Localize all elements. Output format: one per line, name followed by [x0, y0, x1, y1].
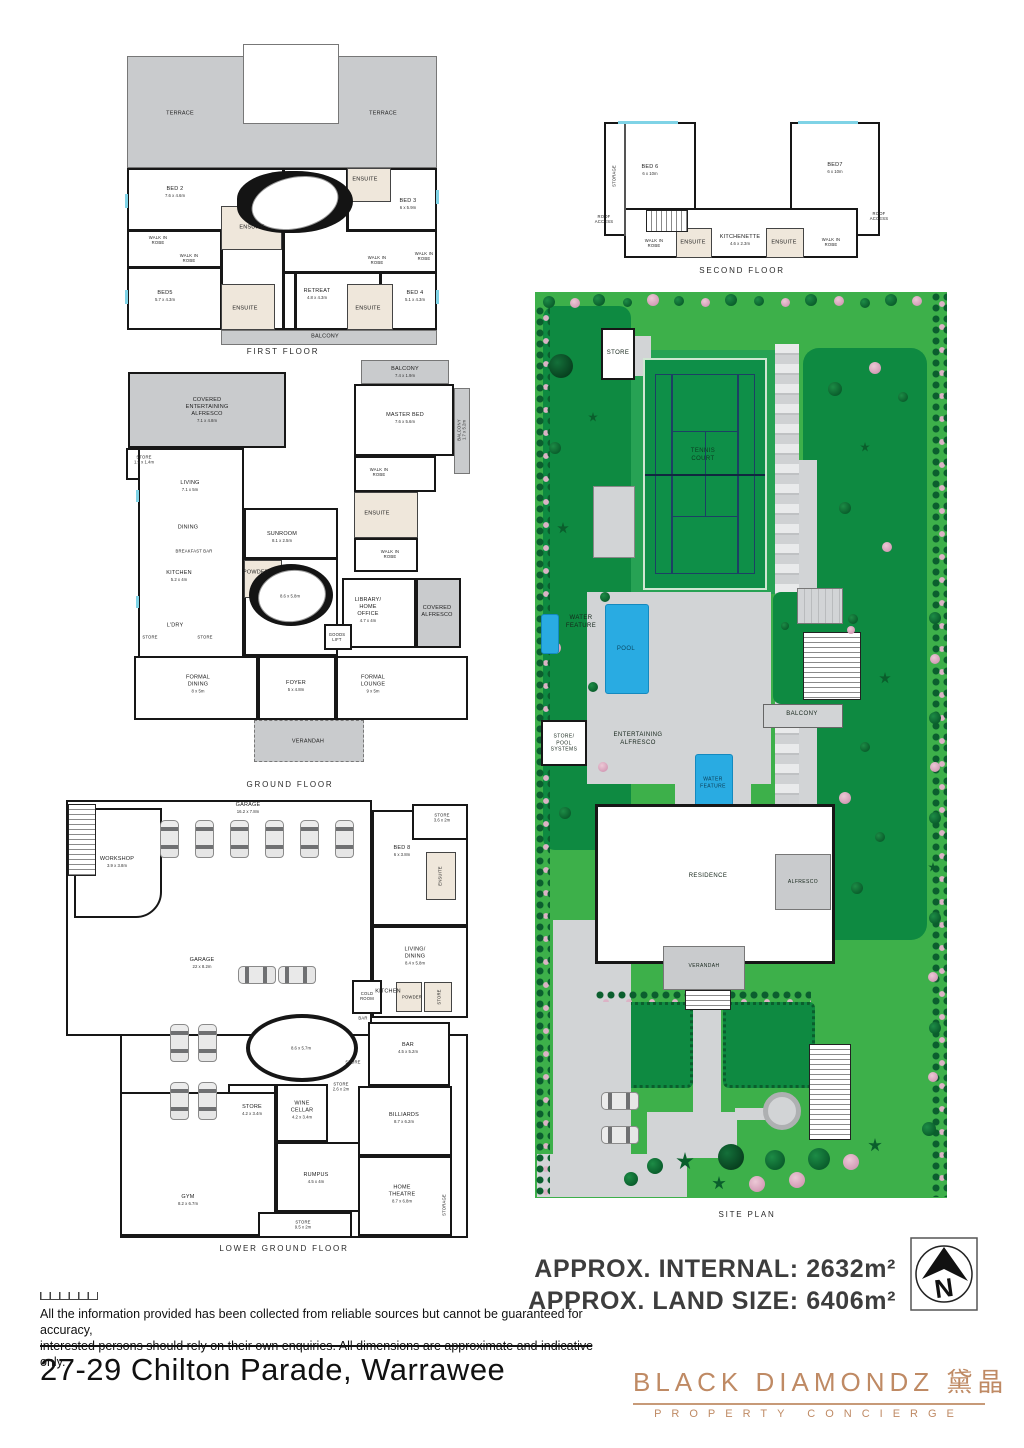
garden-steps — [685, 990, 731, 1010]
window — [125, 290, 128, 304]
room-label: TERRACE — [369, 111, 397, 118]
room-label: 8.6 x 5.7m — [291, 1045, 311, 1050]
agency-tagline: PROPERTY CONCIERGE — [633, 1408, 985, 1420]
room-name: MASTER BED — [386, 412, 424, 418]
first-floor-plan: TERRACE TERRACE BED 27.6 x 4.6m ENSUITE … — [125, 44, 440, 360]
room-label: GOODS LIFT — [326, 632, 348, 643]
car-icon — [238, 966, 276, 984]
room-label: TERRACE — [166, 111, 194, 118]
flowering-shrub-icon — [928, 972, 938, 982]
room-name: BALCONY — [457, 419, 462, 440]
room-name: COVERED ALFRESCO — [421, 605, 452, 618]
room-dims: 8.7 x 6.8m — [385, 1198, 419, 1203]
room-dims: 4.6 x 2.3m — [720, 241, 760, 246]
room-label: STORAGE — [441, 1194, 446, 1216]
room-dims: 7.1 x 5m — [180, 487, 199, 492]
tree-icon — [922, 1122, 936, 1136]
room-dims: 2.6 x 2m — [333, 1087, 349, 1092]
tree-icon — [549, 354, 573, 378]
site-label-text: ALFRESCO — [788, 879, 818, 885]
room-label: ENSUITE — [355, 306, 380, 313]
room-name: BALCONY — [311, 334, 339, 340]
car-icon — [195, 820, 214, 858]
room-label: STORE — [142, 634, 157, 639]
tree-icon — [929, 812, 941, 824]
agency-logo: BLACK DIAMONDZ 黛晶 PROPERTY CONCIERGE — [633, 1362, 985, 1420]
room-dims: 4.7 x 4m — [351, 618, 385, 623]
room-name: VERANDAH — [292, 739, 324, 745]
room-label: LIVING/ DINING8.4 x 5.8m — [397, 946, 433, 965]
room-name: STORE — [136, 455, 151, 460]
room-dims: 7.6 x 5.6m — [386, 419, 424, 424]
room-dims: 16.2 x 7.8m — [236, 809, 261, 814]
hedge-border — [931, 292, 947, 1197]
room-label: STORE1.9 x 1.4m — [134, 455, 154, 466]
room-name: KITCHEN — [166, 570, 192, 576]
car-icon — [278, 966, 316, 984]
room-label: RETREAT4.8 x 4.3m — [304, 288, 331, 300]
compass-north-label: N — [932, 1272, 955, 1304]
tree-icon — [623, 298, 632, 307]
room-name: STORE — [295, 1220, 310, 1225]
room-dims: 3.6 x 2m — [434, 818, 450, 823]
room-name: STORE — [345, 1059, 360, 1064]
room-name: BAR — [358, 1015, 367, 1020]
divider-line — [40, 1345, 592, 1347]
tree-icon — [848, 614, 858, 624]
room-name: BED7 — [827, 162, 842, 168]
room-name: ENSUITE — [352, 177, 377, 183]
driveway-entry — [537, 1154, 687, 1197]
compass-icon: N — [910, 1237, 978, 1316]
room-name: L'DRY — [167, 623, 184, 629]
room-label: WALK IN ROBE — [412, 251, 436, 262]
wall — [624, 122, 626, 236]
room-label: STORE4.2 x 3.4m — [242, 1104, 262, 1116]
room-name: ENSUITE — [232, 306, 257, 312]
flowering-shrub-icon — [928, 1072, 938, 1082]
room-label: RUMPUS4.5 x 4m — [303, 1172, 328, 1184]
room-name: GARAGE — [190, 957, 215, 963]
room-label: LIVING7.1 x 5m — [180, 480, 199, 492]
room-name: WORKSHOP — [100, 856, 134, 862]
terrace-notch — [243, 44, 339, 124]
room-label: GARAGE22 x 8.2m — [190, 957, 215, 969]
room-name: TERRACE — [166, 111, 194, 117]
room-dims: 1.9 x 1.4m — [134, 460, 154, 465]
room-dims: 3.9 x 3.8m — [100, 863, 134, 868]
room-label: BREAKFAST BAR — [176, 548, 213, 553]
flowering-shrub-icon — [781, 298, 790, 307]
room-name: STORE — [197, 634, 212, 639]
room-label: BALCONY — [311, 334, 339, 341]
site-label: POOL — [617, 646, 635, 654]
staircase — [68, 804, 96, 876]
room-dims: 5.2 x 4m — [166, 577, 192, 582]
room-dims: 5.1 x 4.3m — [405, 297, 425, 302]
wall — [282, 271, 437, 274]
window — [125, 194, 128, 208]
room-label: HOME THEATRE8.7 x 6.8m — [385, 1184, 419, 1203]
room-name: COLD ROOM — [360, 991, 374, 1001]
room-name: BAR — [402, 1042, 414, 1048]
car-icon — [230, 820, 249, 858]
room-dims: 8.6 x 5.8m — [280, 593, 300, 598]
tree-icon — [588, 682, 598, 692]
room-label: FOYER5 x 4.8m — [286, 680, 306, 692]
room-dims: 8 x 5m — [181, 688, 215, 693]
flowering-shrub-icon — [843, 1154, 859, 1170]
car-icon — [601, 1092, 639, 1110]
room-name: BALCONY — [391, 366, 419, 372]
tree-icon — [674, 296, 684, 306]
floor-title: FIRST FLOOR — [247, 347, 320, 356]
room-name: STORAGE — [611, 165, 616, 187]
room-name: SUNROOM — [267, 531, 297, 537]
water-feature — [541, 614, 559, 654]
car-icon — [198, 1082, 217, 1120]
site-label-text: POOL — [617, 646, 635, 652]
room-name: LIVING/ DINING — [405, 946, 426, 959]
tree-icon — [808, 1148, 830, 1170]
room-name: BED5 — [157, 290, 172, 296]
site-label: TENNIS COURT — [683, 448, 723, 464]
flowering-shrub-icon — [930, 654, 940, 664]
site-plan: STORE TENNIS COURT WATER FEATURE POOL ST… — [535, 292, 947, 1226]
room-name: GOODS LIFT — [329, 632, 346, 642]
room-dims: 4.2 x 3.4m — [242, 1111, 262, 1116]
room-label: GARAGE16.2 x 7.8m — [236, 802, 261, 814]
window — [436, 190, 439, 204]
room-dims: 6 x 3.8m — [394, 852, 411, 857]
room-label: L'DRY — [167, 623, 184, 630]
tree-icon — [839, 502, 851, 514]
site-label: STORE — [607, 350, 630, 358]
car-icon — [300, 820, 319, 858]
ground-floor-plan: COVERED ENTERTAINING ALFRESCO7.1 x 4.8m … — [106, 360, 474, 796]
approx-internal: APPROX. INTERNAL: 2632m² — [528, 1253, 896, 1285]
room-label: ENSUITE — [680, 240, 705, 247]
site-label-text: WATER FEATURE — [566, 615, 596, 629]
floor-title: GROUND FLOOR — [247, 780, 334, 789]
window — [618, 121, 678, 124]
parterre-bed — [723, 1002, 815, 1088]
room-dims: 9 x 5m — [355, 688, 391, 693]
room-dims: 6 x 5.9m — [400, 205, 417, 210]
window — [436, 290, 439, 304]
room-name: WALK IN ROBE — [370, 467, 388, 477]
room-dims: 7.1 x 4.8m — [179, 418, 235, 423]
room-label: 8.6 x 5.8m — [280, 593, 300, 598]
site-label-text: BALCONY — [786, 711, 817, 717]
room-label: WALK IN ROBE — [377, 549, 403, 560]
pergola — [797, 588, 843, 624]
tree-icon — [765, 1150, 785, 1170]
flowering-shrub-icon — [701, 298, 710, 307]
site-label: RESIDENCE — [689, 873, 728, 881]
tree-icon — [593, 294, 605, 306]
site-label: BALCONY — [786, 711, 817, 719]
floor-title: SECOND FLOOR — [699, 266, 785, 275]
car-icon — [160, 820, 179, 858]
room-name: ENSUITE — [437, 866, 442, 886]
tree-icon — [543, 296, 555, 308]
flowering-shrub-icon — [570, 298, 580, 308]
room-label: WALK IN ROBE — [365, 255, 389, 266]
tree-icon — [929, 612, 941, 624]
room-dims: 6 x 10m — [827, 169, 842, 174]
room-name: WALK IN ROBE — [415, 251, 433, 261]
room-label: ENSUITE — [232, 306, 257, 313]
room-name: BED 2 — [167, 186, 184, 192]
tree-icon — [559, 807, 571, 819]
room-dims: 4.8 x 4.3m — [304, 295, 331, 300]
room-name: STORE — [436, 989, 441, 1004]
ensuite-area — [347, 168, 391, 202]
room-label: FORMAL LOUNGE9 x 5m — [355, 674, 391, 693]
room-name: BED 4 — [407, 290, 424, 296]
room-dims: 4.2 x 3.4m — [287, 1114, 317, 1119]
room-dims: 1.7 x 5.2m — [462, 419, 467, 440]
room-label: BED 27.6 x 4.6m — [165, 186, 185, 198]
room-name: BED 6 — [642, 164, 659, 170]
wall — [294, 271, 297, 330]
flowering-shrub-icon — [912, 296, 922, 306]
room-label: BED55.7 x 4.3m — [155, 290, 175, 302]
room-label: WINE CELLAR4.2 x 3.4m — [287, 1100, 317, 1119]
room-name: STORE — [333, 1082, 348, 1087]
room-name: ENSUITE — [364, 511, 389, 517]
room-name: HOME THEATRE — [389, 1184, 416, 1197]
room-name: ENSUITE — [239, 225, 264, 231]
room-dims: 7.6 x 4.6m — [165, 193, 185, 198]
room-name: BREAKFAST BAR — [176, 548, 213, 553]
tree-icon — [600, 592, 610, 602]
room-label: COLD ROOM — [357, 991, 377, 1002]
site-label-text: STORE — [607, 350, 630, 356]
tree-icon — [754, 296, 764, 306]
room-label: WALK IN ROBE — [177, 253, 201, 264]
lower-ground-floor-plan: WORKSHOP3.9 x 3.8m GARAGE16.2 x 7.8m GAR… — [60, 796, 472, 1258]
tree-icon — [860, 298, 870, 308]
site-label: WATER FEATURE — [698, 777, 728, 790]
garden-structure — [593, 486, 635, 558]
room-name: STORE — [242, 1104, 262, 1110]
grand-stairs — [809, 1044, 851, 1140]
room-name: LIBRARY/ HOME OFFICE — [355, 597, 382, 617]
logo-rule — [633, 1403, 985, 1405]
room-label: MASTER BED7.6 x 5.6m — [386, 412, 424, 424]
room-label: WALK IN ROBE — [366, 467, 392, 478]
car-icon — [265, 820, 284, 858]
room-label: STORE2.6 x 2m — [333, 1082, 349, 1093]
room-dims: 8.7 x 6.2m — [389, 1119, 419, 1124]
tree-icon — [851, 882, 863, 894]
floorplan-page: TERRACE TERRACE BED 27.6 x 4.6m ENSUITE … — [0, 0, 1024, 1448]
room-name: WALK IN ROBE — [645, 238, 663, 248]
room-name: RETREAT — [304, 288, 331, 294]
room-label: KITCHEN — [375, 989, 401, 996]
site-label-text: STORE/ POOL SYSTEMS — [551, 733, 578, 752]
room-label: DINING — [178, 525, 198, 532]
room-label: ROOF ACCESS — [869, 211, 889, 222]
room-label: BED 45.1 x 4.3m — [405, 290, 425, 302]
room-name: FORMAL LOUNGE — [361, 674, 385, 687]
tree-icon — [885, 294, 897, 306]
property-address: 27-29 Chilton Parade, Warrawee — [40, 1352, 505, 1388]
flowering-shrub-icon — [647, 294, 659, 306]
site-plan-title: SITE PLAN — [718, 1210, 775, 1219]
room-label: STORE — [345, 1059, 360, 1064]
site-label: ENTERTAINING ALFRESCO — [608, 732, 668, 748]
room-dims: 9.5 x 2m — [295, 1225, 311, 1230]
room-name: BILLIARDS — [389, 1112, 419, 1118]
tree-icon — [725, 294, 737, 306]
site-label: VERANDAH — [689, 963, 720, 970]
flowering-shrub-icon — [839, 792, 851, 804]
site-label-text: WATER FEATURE — [700, 777, 726, 790]
car-icon — [335, 820, 354, 858]
room-dims: 7.4 x 1.9m — [391, 373, 419, 378]
site-label-text: RESIDENCE — [689, 873, 728, 879]
room-label: BALCONY1.7 x 5.2m — [457, 419, 468, 440]
room-name: WINE CELLAR — [291, 1100, 314, 1113]
floor-title: LOWER GROUND FLOOR — [219, 1244, 348, 1253]
window — [798, 121, 858, 124]
tree-icon — [929, 1022, 941, 1034]
room-name: POWDER — [243, 570, 269, 576]
tennis-court — [643, 358, 767, 590]
tree-icon — [805, 294, 817, 306]
room-label: COVERED ALFRESCO — [421, 605, 453, 619]
room-name: DINING — [178, 525, 198, 531]
room-label: ROOF ACCESS — [594, 214, 614, 225]
room-name: WALK IN ROBE — [381, 549, 399, 559]
room-label: GYM8.2 x 6.7m — [178, 1194, 198, 1206]
room-label: STORE — [197, 634, 212, 639]
car-icon — [170, 1082, 189, 1120]
room-name: FOYER — [286, 680, 306, 686]
flowering-shrub-icon — [598, 762, 608, 772]
room-name: KITCHENETTE — [720, 234, 760, 240]
room-dims: 8.1 x 2.5m — [267, 538, 297, 543]
room-dims: 8.6 x 5.7m — [291, 1045, 311, 1050]
room-name: ROOF ACCESS — [595, 214, 613, 224]
room-label: ENSUITE — [239, 225, 264, 232]
site-label-text: ENTERTAINING ALFRESCO — [614, 732, 663, 746]
room-dims: 5 x 4.8m — [286, 687, 306, 692]
room-name: BED 3 — [400, 198, 417, 204]
court-net — [645, 474, 765, 476]
room-label: BED76 x 10m — [827, 162, 842, 174]
site-label-text: VERANDAH — [689, 963, 720, 969]
room-label: SUNROOM8.1 x 2.5m — [267, 531, 297, 543]
tree-icon — [929, 912, 941, 924]
room-name: WALK IN ROBE — [822, 237, 840, 247]
site-label: ALFRESCO — [788, 879, 818, 886]
room-name: BED 8 — [394, 845, 411, 851]
room-label: KITCHEN5.2 x 4m — [166, 570, 192, 582]
site-label: STORE/ POOL SYSTEMS — [547, 733, 581, 753]
room-label: BALCONY7.4 x 1.9m — [391, 366, 419, 378]
flowering-shrub-icon — [834, 296, 844, 306]
fountain-circle — [763, 1092, 801, 1130]
wall — [127, 266, 221, 269]
room-name: ENSUITE — [771, 240, 796, 246]
room-dims: 8.4 x 5.8m — [397, 960, 433, 965]
room-name: STORE — [434, 813, 449, 818]
room-label: WORKSHOP3.9 x 3.8m — [100, 856, 134, 868]
room-label: POWDER — [402, 994, 422, 999]
room-label: ENSUITE — [437, 866, 442, 886]
room-name: GYM — [181, 1194, 194, 1200]
room-label: COVERED ENTERTAINING ALFRESCO7.1 x 4.8m — [179, 397, 235, 423]
room-name: ENSUITE — [680, 240, 705, 246]
room-label: POWDER — [243, 570, 269, 577]
room-label: STORE9.5 x 2m — [295, 1220, 311, 1231]
room-dims: 4.5 x 5.2m — [398, 1049, 418, 1054]
flowering-shrub-icon — [749, 1176, 765, 1192]
room-label: BED 36 x 5.9m — [400, 198, 417, 210]
room-name: COVERED ENTERTAINING ALFRESCO — [186, 397, 229, 417]
window — [136, 596, 139, 608]
tree-icon — [898, 392, 908, 402]
flowering-shrub-icon — [847, 626, 855, 634]
room-label: WALK IN ROBE — [643, 238, 665, 249]
tree-icon — [647, 1158, 663, 1174]
room-name: FORMAL DINING — [186, 674, 210, 687]
room-name: ENSUITE — [355, 306, 380, 312]
room-dims: 6 x 10m — [642, 171, 659, 176]
site-label-text: TENNIS COURT — [691, 448, 715, 462]
wall — [346, 229, 437, 232]
site-label: WATER FEATURE — [564, 615, 598, 631]
tree-icon — [929, 712, 941, 724]
room-dims: 8.2 x 6.7m — [178, 1201, 198, 1206]
room-label: STORE — [436, 989, 441, 1004]
room-label: FORMAL DINING8 x 5m — [181, 674, 215, 693]
room-dims: 5.7 x 4.3m — [155, 297, 175, 302]
room-name: ROOF ACCESS — [870, 211, 888, 221]
room-label: WALK IN ROBE — [146, 235, 170, 246]
disclaimer-line: All the information provided has been co… — [40, 1306, 600, 1338]
garden-steps — [803, 632, 861, 700]
tree-icon — [781, 622, 789, 630]
room-name: WALK IN ROBE — [368, 255, 386, 265]
car-icon — [601, 1126, 639, 1144]
room-label: BED 86 x 3.8m — [394, 845, 411, 857]
room-label: LIBRARY/ HOME OFFICE4.7 x 4m — [351, 597, 385, 623]
room-name: LIVING — [180, 480, 199, 486]
agency-name: BLACK DIAMONDZ 黛晶 — [633, 1362, 985, 1399]
room-dims: 22 x 8.2m — [190, 964, 215, 969]
tree-icon — [860, 742, 870, 752]
room-name: TERRACE — [369, 111, 397, 117]
room-label: KITCHENETTE4.6 x 2.3m — [720, 234, 760, 246]
room-label: STORE3.6 x 2m — [434, 813, 450, 824]
room-label: BAR — [358, 1015, 367, 1020]
flowering-shrub-icon — [930, 762, 940, 772]
room-name: STORE — [142, 634, 157, 639]
room-label: VERANDAH — [292, 739, 324, 746]
window — [136, 490, 139, 502]
room-name: WALK IN ROBE — [149, 235, 167, 245]
flowering-shrub-icon — [869, 362, 881, 374]
car-icon — [170, 1024, 189, 1062]
tree-icon — [624, 1172, 638, 1186]
tree-icon — [875, 832, 885, 842]
room-label: BILLIARDS8.7 x 6.2m — [389, 1112, 419, 1124]
